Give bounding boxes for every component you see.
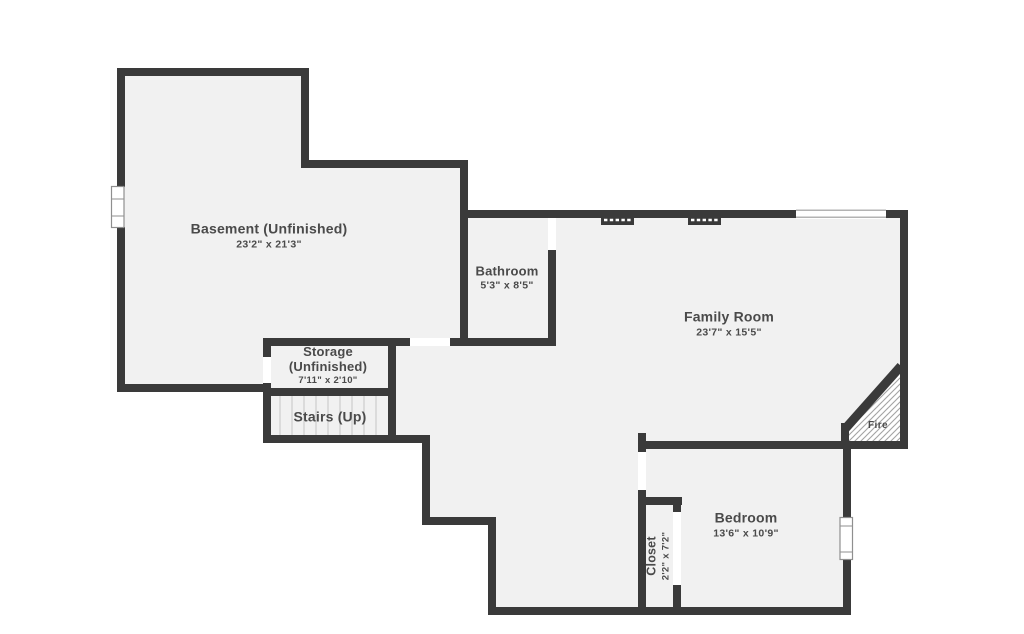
- floor-plan: Basement (Unfinished) 23'2" x 21'3" Bath…: [0, 0, 1024, 634]
- room-name: (Unfinished): [289, 360, 367, 375]
- room-name: Storage: [289, 345, 367, 360]
- window-icon: [840, 518, 853, 560]
- room-label-closet: Closet 2'2" x 7'2": [644, 532, 672, 581]
- room-label-storage: Storage (Unfinished) 7'11" x 2'10": [289, 345, 367, 387]
- closet-door-opening: [673, 512, 681, 585]
- storage-door-opening: [263, 357, 271, 383]
- hall-door-opening: [410, 338, 450, 346]
- fireplace-label: Fire: [868, 420, 888, 433]
- room-label-bedroom: Bedroom 13'6" x 10'9": [713, 510, 779, 541]
- bedroom-door-opening: [638, 452, 646, 490]
- room-label-family-room: Family Room 23'7" x 15'5": [684, 309, 774, 340]
- vent-icon: [601, 215, 634, 225]
- room-dims: 23'7" x 15'5": [684, 326, 774, 339]
- room-dims: 13'6" x 10'9": [713, 527, 779, 540]
- vent-icon: [688, 215, 721, 225]
- room-name: Bedroom: [713, 510, 779, 528]
- room-name: Fire: [868, 420, 888, 433]
- room-name: Bathroom: [476, 263, 539, 279]
- room-name: Closet: [644, 532, 660, 581]
- room-dims: 2'2" x 7'2": [660, 532, 672, 581]
- room-name: Basement (Unfinished): [191, 221, 348, 239]
- room-label-bathroom: Bathroom 5'3" x 8'5": [476, 263, 539, 292]
- bathroom-door-opening: [548, 218, 556, 250]
- room-label-stairs: Stairs (Up): [294, 408, 367, 426]
- window-icon: [796, 209, 886, 219]
- window-icon: [112, 187, 125, 228]
- room-label-basement: Basement (Unfinished) 23'2" x 21'3": [191, 221, 348, 252]
- room-dims: 5'3" x 8'5": [476, 280, 539, 293]
- room-name: Stairs (Up): [294, 408, 367, 426]
- room-dims: 23'2" x 21'3": [191, 238, 348, 251]
- floor-plan-drawing: [0, 0, 1024, 634]
- room-name: Family Room: [684, 309, 774, 327]
- room-dims: 7'11" x 2'10": [289, 375, 367, 387]
